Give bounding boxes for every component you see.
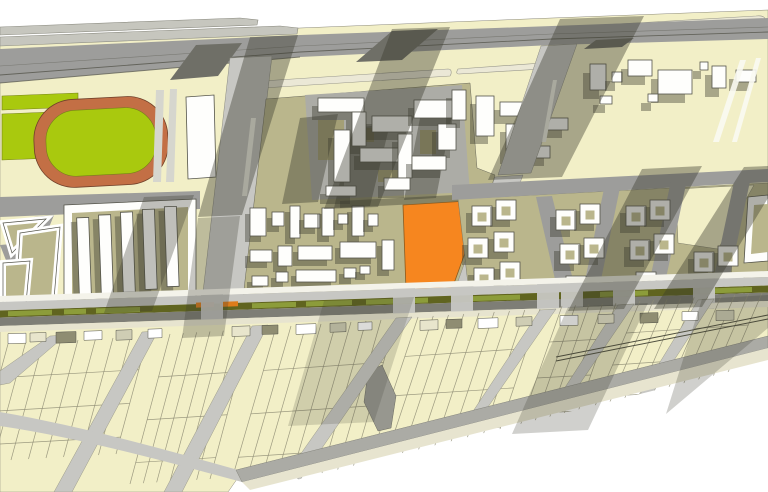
courtyard	[562, 217, 571, 226]
median-planting	[64, 309, 86, 315]
site-plan-map[interactable]	[0, 0, 768, 492]
site-plan-page	[0, 0, 768, 492]
street-crossing	[537, 283, 559, 308]
building	[682, 311, 698, 321]
building	[452, 90, 466, 120]
courtyard	[478, 213, 487, 222]
building	[446, 319, 462, 329]
building	[99, 215, 114, 295]
building	[116, 330, 132, 341]
building	[296, 324, 316, 335]
building	[296, 270, 336, 282]
building	[476, 96, 494, 136]
building	[368, 214, 378, 226]
courtyard	[660, 241, 669, 250]
building	[318, 98, 364, 112]
building	[262, 325, 278, 335]
building	[338, 214, 348, 224]
building	[298, 246, 332, 260]
building	[56, 332, 76, 344]
building	[340, 242, 376, 258]
building	[148, 329, 162, 338]
building	[628, 60, 652, 76]
building	[77, 217, 92, 295]
courtyard	[590, 245, 599, 254]
building-shadow	[693, 71, 701, 79]
building	[250, 250, 272, 262]
building	[272, 212, 284, 226]
courtyard	[500, 239, 509, 248]
building	[352, 206, 364, 236]
building	[382, 240, 394, 270]
building	[712, 66, 726, 88]
courtyard	[566, 251, 575, 260]
building	[290, 206, 300, 238]
building	[278, 246, 292, 266]
courtyard	[506, 269, 515, 278]
building	[232, 326, 250, 337]
track-infield	[44, 106, 157, 178]
building	[516, 317, 532, 327]
building	[412, 156, 446, 170]
building	[344, 268, 356, 278]
building	[84, 331, 102, 341]
building	[700, 62, 708, 70]
running-track	[32, 95, 170, 190]
building-shadow	[641, 103, 651, 111]
building	[276, 272, 288, 282]
building	[252, 276, 268, 286]
building	[322, 208, 334, 236]
building	[478, 318, 498, 329]
building	[250, 208, 266, 236]
building	[360, 266, 370, 274]
building	[186, 95, 216, 179]
building	[30, 332, 46, 342]
building	[648, 94, 658, 102]
building	[420, 320, 438, 331]
building	[658, 70, 692, 94]
building	[8, 333, 26, 344]
street-crossing	[451, 286, 473, 311]
courtyard	[474, 245, 483, 254]
courtyard	[586, 211, 595, 220]
courtyard	[502, 207, 511, 216]
